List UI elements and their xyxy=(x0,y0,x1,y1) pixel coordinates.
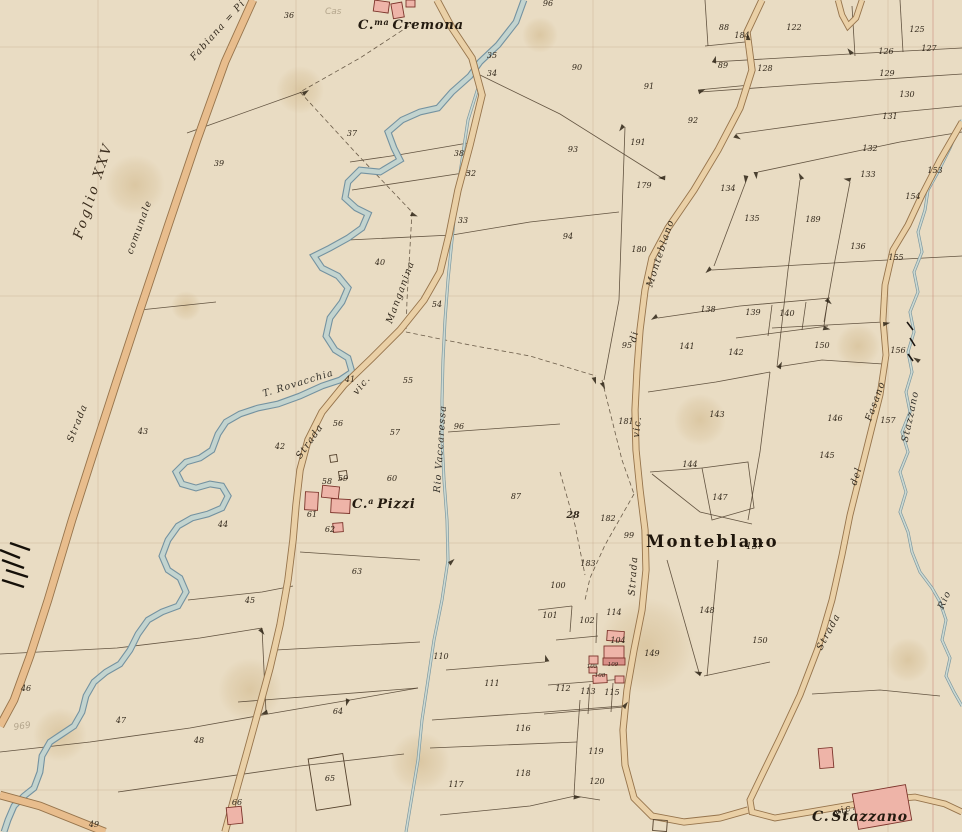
parcel-number: 108 xyxy=(595,673,606,679)
parcel-number: 157 xyxy=(880,416,896,425)
parcel-number: 127 xyxy=(921,44,937,53)
parcel-number: 39 xyxy=(214,159,224,168)
parcel-number: 138 xyxy=(700,305,715,314)
parcel-number: 139 xyxy=(745,308,760,317)
parcel-number: 117 xyxy=(448,780,464,789)
parcel-number: 96 xyxy=(543,0,553,8)
parcel-number: 87 xyxy=(511,492,522,501)
map-canvas: 3696353490919293191179941803738323933405… xyxy=(0,0,962,832)
parcel-number: 90 xyxy=(572,63,582,72)
parcel-number: 147 xyxy=(712,493,728,502)
parcel-number: 38 xyxy=(454,149,464,158)
parcel-number: 135 xyxy=(744,214,759,223)
parcel-number: 35 xyxy=(487,51,497,60)
parcel-number: 114 xyxy=(606,608,621,617)
parcel-number: 37 xyxy=(347,129,358,138)
parcel-number: 120 xyxy=(589,777,604,786)
parcel-number: 65 xyxy=(325,774,335,783)
parcel-number: 122 xyxy=(786,23,801,32)
parcel-number: 142 xyxy=(728,348,743,357)
parcel-number: 145 xyxy=(819,451,834,460)
parcel-number: 34 xyxy=(487,69,497,78)
parcel-number: 132 xyxy=(862,144,877,153)
parcel-number: 66 xyxy=(232,798,242,807)
parcel-number: 179 xyxy=(636,181,651,190)
parcel-number: 47 xyxy=(115,716,127,725)
pencil-mark: Cas xyxy=(325,7,342,17)
parcel-number: 28 xyxy=(565,510,580,521)
parcel-number: 150 xyxy=(814,341,829,350)
parcel-number: 36 xyxy=(284,11,294,20)
parcel-number: 99 xyxy=(624,531,634,540)
parcel-number: 94 xyxy=(563,232,573,241)
parcel-number: 89 xyxy=(718,61,728,70)
parcel-number: 59 xyxy=(338,474,348,483)
parcel-number: 64 xyxy=(333,707,343,716)
parcel-number: 136 xyxy=(850,242,865,251)
parcel-number: 118 xyxy=(515,769,530,778)
parcel-number: 119 xyxy=(588,747,603,756)
parcel-number: 143 xyxy=(709,410,724,419)
parcel-number: 101 xyxy=(542,611,557,620)
parcel-number: 140 xyxy=(779,309,794,318)
parcel-number: 62 xyxy=(325,525,335,534)
parcel-number: 156 xyxy=(890,346,905,355)
parcel-number: 102 xyxy=(579,616,594,625)
parcel-number: 40 xyxy=(374,258,385,267)
parcel-number: 92 xyxy=(688,116,698,125)
parcel-number: 149 xyxy=(644,649,659,658)
parcel-number: 96 xyxy=(454,422,464,431)
place-label-cremona: C.maCremona xyxy=(358,17,464,33)
parcel-number: 43 xyxy=(137,427,148,436)
place-label-stazzano: C.Stazzano xyxy=(812,809,908,825)
parcel-number: 109 xyxy=(608,662,619,668)
parcel-number: 44 xyxy=(217,520,228,529)
parcel-number: 33 xyxy=(458,216,468,225)
parcel-number: 155 xyxy=(888,253,903,262)
parcel-number: 49 xyxy=(88,820,99,829)
parcel-number: 63 xyxy=(352,567,362,576)
parcel-number: 191 xyxy=(630,138,645,147)
parcel-number: 45 xyxy=(244,596,255,605)
parcel-number: 112 xyxy=(555,684,570,693)
parcel-number: 105 xyxy=(587,664,598,670)
parcel-number: 148 xyxy=(699,606,714,615)
parcel-number: 184 xyxy=(734,31,749,40)
parcel-number: 182 xyxy=(600,514,615,523)
parcel-number: 55 xyxy=(403,376,413,385)
parcel-number: 115 xyxy=(604,688,619,697)
parcel-number: 57 xyxy=(390,428,401,437)
parcel-number: 180 xyxy=(631,245,646,254)
parcel-number: 130 xyxy=(899,90,914,99)
parcel-number: 56 xyxy=(333,419,343,428)
parcel-number: 32 xyxy=(466,169,476,178)
parcel-number: 48 xyxy=(193,736,204,745)
parcel-number: 154 xyxy=(905,192,920,201)
parcel-number: 41 xyxy=(344,375,355,384)
parcel-number: 116 xyxy=(515,724,530,733)
parcel-number: 146 xyxy=(827,414,842,423)
parcel-number: 111 xyxy=(484,679,499,688)
parcel-number: 61 xyxy=(307,510,317,519)
parcel-number: 104 xyxy=(610,636,625,645)
parcel-number: 42 xyxy=(274,442,285,451)
road-name-label: vic. xyxy=(631,415,644,438)
parcel-number: 134 xyxy=(720,184,735,193)
building-66 xyxy=(226,806,243,824)
parcel-number: 150 xyxy=(752,636,767,645)
parcel-number: 113 xyxy=(580,687,595,696)
parcel-number: 144 xyxy=(682,460,697,469)
parcel-number: 100 xyxy=(550,581,565,590)
parcel-number: 110 xyxy=(433,652,448,661)
parcel-number: 133 xyxy=(860,170,875,179)
parcel-number: 128 xyxy=(757,64,772,73)
paper-background xyxy=(0,0,962,832)
parcel-number: 141 xyxy=(679,342,694,351)
parcel-number: 126 xyxy=(878,47,893,56)
parcel-number: 189 xyxy=(805,215,820,224)
parcel-number: 46 xyxy=(20,684,31,693)
parcel-number: 91 xyxy=(644,82,654,91)
parcel-number: 58 xyxy=(322,477,332,486)
place-label-pizzi: C.aPizzi xyxy=(352,496,416,512)
monteblano-parcel-number: 137 xyxy=(746,542,763,552)
parcel-number: 93 xyxy=(568,145,578,154)
parcel-number: 129 xyxy=(879,69,894,78)
parcel-number: 153 xyxy=(927,166,942,175)
parcel-number: 183 xyxy=(580,559,595,568)
parcel-number: 54 xyxy=(432,300,442,309)
parcel-number: 88 xyxy=(719,23,729,32)
cadastral-map-sheet: 3696353490919293191179941803738323933405… xyxy=(0,0,962,832)
parcel-number: 125 xyxy=(909,25,924,34)
parcel-number: 60 xyxy=(387,474,397,483)
parcel-number: 131 xyxy=(882,112,897,121)
